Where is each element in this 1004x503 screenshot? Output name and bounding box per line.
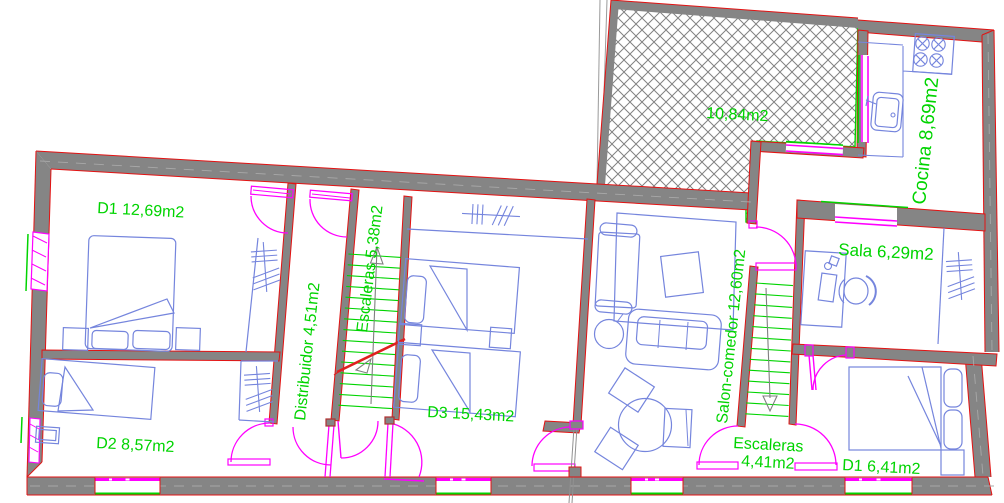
svg-text:10,84m2: 10,84m2 bbox=[706, 105, 769, 125]
svg-text:4,41m2: 4,41m2 bbox=[741, 453, 795, 473]
